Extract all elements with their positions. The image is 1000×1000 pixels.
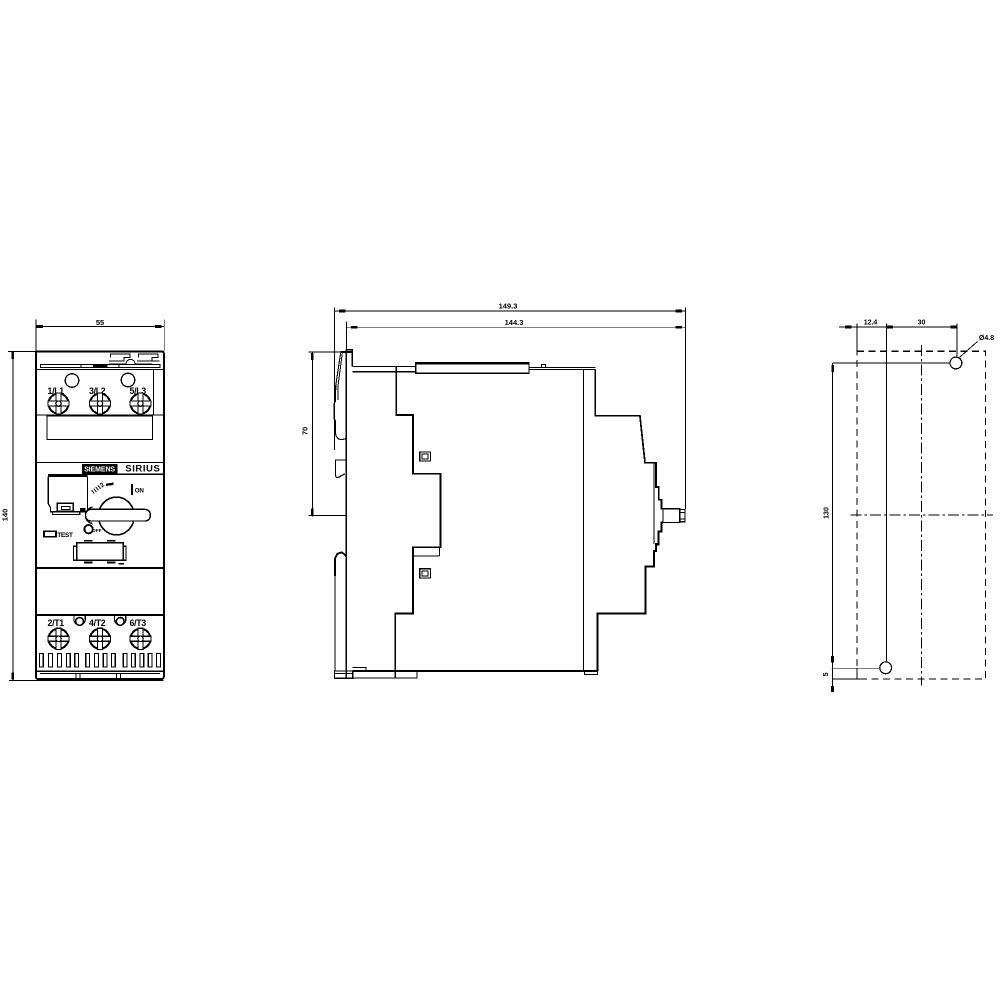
svg-text:140: 140 [0,509,9,522]
svg-text:5: 5 [823,672,830,676]
svg-text:ON: ON [135,487,145,494]
svg-text:6/T3: 6/T3 [130,618,147,628]
svg-text:SIEMENS: SIEMENS [84,467,115,474]
svg-text:70: 70 [300,427,309,435]
svg-text:55: 55 [96,318,104,327]
svg-text:30: 30 [918,320,926,327]
svg-text:TEST: TEST [57,532,74,539]
svg-text:144.3: 144.3 [505,318,524,327]
svg-text:4/T2: 4/T2 [89,618,106,628]
svg-text:SIRIUS: SIRIUS [125,464,160,475]
svg-text:149.3: 149.3 [499,302,518,311]
svg-text:2/T1: 2/T1 [48,618,65,628]
svg-text:12.4: 12.4 [864,320,878,327]
svg-text:130: 130 [823,507,830,519]
svg-text:Ø4.8: Ø4.8 [979,335,994,342]
svg-text:OFF: OFF [92,528,102,534]
